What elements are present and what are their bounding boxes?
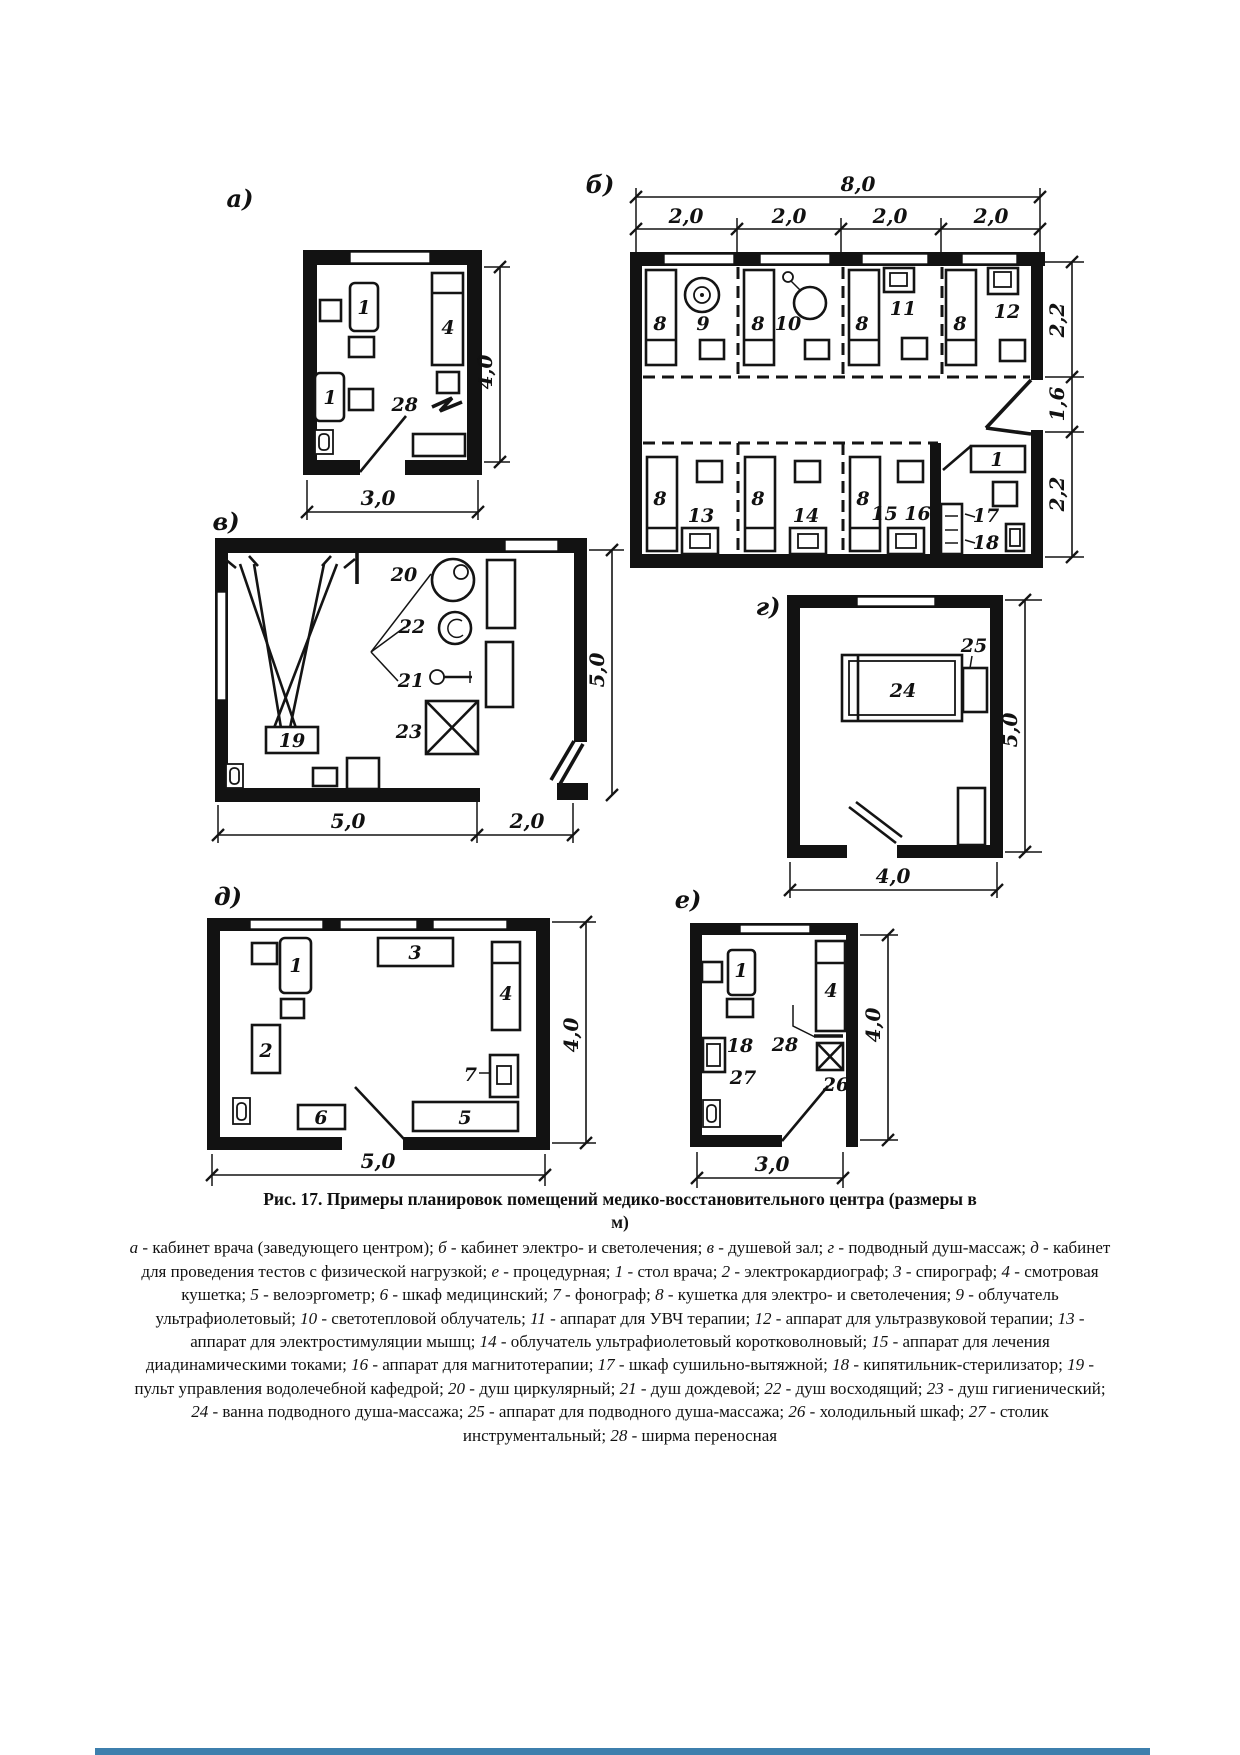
- plan-g: г) 24 25 5,0: [756, 592, 1042, 898]
- dim-right-mid: 1,6: [1045, 387, 1069, 422]
- item-exam-couch: 4: [499, 983, 512, 1005]
- figure-caption: Рис. 17. Примеры планировок помещений ме…: [128, 1188, 1113, 1447]
- door-leaf: [360, 416, 406, 472]
- legend-key: 14: [480, 1332, 497, 1351]
- legend-key: 9: [955, 1285, 964, 1304]
- legend-key: в: [707, 1238, 714, 1257]
- item-ecg: 2: [258, 1040, 272, 1062]
- item-bath: 24: [889, 680, 916, 702]
- window: [760, 254, 830, 264]
- plan-a: а) 1 1 4 28: [227, 184, 510, 520]
- item-couch: 8: [652, 313, 666, 335]
- window: [340, 920, 417, 929]
- item-myostim: 13: [688, 505, 714, 527]
- dim-height: 5,0: [585, 653, 609, 688]
- legend-key: 18: [832, 1355, 849, 1374]
- item-heat-irradiator: 10: [775, 313, 801, 335]
- legend-key: 12: [755, 1309, 772, 1328]
- item-sterilizer: 18: [973, 532, 999, 554]
- window: [433, 920, 507, 929]
- plan-b-label: б): [586, 170, 615, 199]
- item-doctor-desk: 1: [323, 387, 336, 409]
- legend-key: 25: [468, 1402, 485, 1421]
- plan-g-label: г): [756, 592, 781, 621]
- dim-width: 5,0: [361, 1149, 396, 1173]
- item-exam-couch: 4: [441, 317, 454, 339]
- dim-width: 4,0: [876, 864, 911, 888]
- legend-key: 23: [927, 1379, 944, 1398]
- plan-v: в) 19: [212, 507, 624, 843]
- dim-height: 4,0: [473, 355, 497, 390]
- plan-v-label: в): [212, 507, 239, 536]
- legend-key: 13: [1058, 1309, 1075, 1328]
- legend-key: б: [438, 1238, 447, 1257]
- window: [505, 540, 558, 551]
- dim-height: 5,0: [998, 713, 1022, 748]
- window: [250, 920, 323, 929]
- item-couch: 8: [750, 488, 764, 510]
- legend-key: г: [828, 1238, 835, 1257]
- plan-a-label: а): [227, 184, 254, 213]
- item-couch: 8: [750, 313, 764, 335]
- item-drying-cabinet: 17: [973, 505, 999, 527]
- legend-key: 8: [655, 1285, 664, 1304]
- dim-right-bottom: 2,2: [1045, 477, 1069, 513]
- window: [350, 252, 430, 263]
- door-leaf: [856, 802, 902, 837]
- entry-splay: [551, 741, 574, 780]
- furniture: [315, 273, 465, 456]
- door-leaf: [782, 1086, 828, 1141]
- legend-key: 16: [351, 1355, 368, 1374]
- item-diadynamic-magnet: 15 16: [871, 503, 931, 525]
- item-couch: 8: [855, 488, 869, 510]
- item-doctor-desk: 1: [289, 955, 302, 977]
- window: [962, 254, 1017, 264]
- bottom-accent-bar: [95, 1748, 1150, 1755]
- legend-key: 28: [610, 1426, 627, 1445]
- document-page: а) 1 1 4 28: [0, 0, 1240, 1755]
- window: [857, 597, 935, 606]
- item-fridge: 26: [822, 1074, 849, 1096]
- item-couch: 8: [854, 313, 868, 335]
- item-rain-shower: 21: [397, 670, 424, 692]
- dim-width-main: 5,0: [331, 809, 366, 833]
- entry-splay: [986, 428, 1031, 434]
- item-doctor-desk: 1: [357, 297, 370, 319]
- legend-key: 3: [893, 1262, 902, 1281]
- legend-key: 17: [598, 1355, 615, 1374]
- item-massage-apparatus: 25: [960, 635, 987, 657]
- legend-key: д: [1030, 1238, 1039, 1257]
- dim-width: 3,0: [361, 486, 396, 510]
- door-leaf: [849, 807, 896, 843]
- item-uv-short: 14: [793, 505, 819, 527]
- item-circular-shower: 20: [390, 564, 417, 586]
- dim-height: 4,0: [861, 1008, 885, 1043]
- item-console: 19: [279, 730, 305, 752]
- item-screen: 28: [391, 394, 418, 416]
- item-bike: 5: [458, 1107, 471, 1129]
- figure-17-drawing: а) 1 1 4 28: [0, 0, 1240, 1190]
- door-leaf: [943, 446, 971, 470]
- legend-key: 20: [448, 1379, 465, 1398]
- legend-key: 7: [552, 1285, 561, 1304]
- legend-key: 10: [300, 1309, 317, 1328]
- furniture: [233, 938, 520, 1131]
- shower-fixtures: [226, 559, 515, 789]
- window: [740, 925, 810, 933]
- figure-title-line2: м): [611, 1212, 629, 1232]
- dimensions-top: 8,0 2,0 2,0 2,0 2,0: [630, 172, 1046, 252]
- figure-legend: а - кабинет врача (заведующего центром);…: [128, 1236, 1113, 1447]
- entry-splay: [560, 744, 583, 784]
- door-leaf: [355, 1087, 404, 1139]
- dim-width: 3,0: [755, 1152, 790, 1176]
- item-spirograph: 3: [408, 942, 421, 964]
- hydro-console: [225, 556, 355, 753]
- figure-title-line1: Рис. 17. Примеры планировок помещений ме…: [263, 1189, 977, 1209]
- dimensions-right: 2,2 1,6 2,2: [1045, 256, 1084, 563]
- plan-e-label: е): [675, 885, 702, 914]
- legend-key: 4: [1002, 1262, 1011, 1281]
- item-phonograph: 7: [464, 1064, 477, 1086]
- dim-right-top: 2,2: [1045, 303, 1069, 339]
- dim-total: 8,0: [840, 172, 876, 196]
- legend-key: 22: [764, 1379, 781, 1398]
- legend-key: е: [491, 1262, 499, 1281]
- legend-key: а: [130, 1238, 139, 1257]
- legend-key: 5: [250, 1285, 259, 1304]
- window: [217, 592, 226, 700]
- item-exam-couch: 4: [824, 980, 837, 1002]
- plan-d-label: д): [214, 882, 242, 911]
- legend-key: 27: [969, 1402, 986, 1421]
- item-doctor-desk: 1: [734, 960, 747, 982]
- dim-width-annex: 2,0: [509, 809, 545, 833]
- item-uv-irradiator: 9: [696, 313, 709, 335]
- dim-bay: 2,0: [973, 204, 1009, 228]
- legend-key: 26: [788, 1402, 805, 1421]
- item-instrument-table: 27: [729, 1067, 756, 1089]
- dim-height: 4,0: [559, 1018, 583, 1053]
- item-uhf: 11: [890, 298, 916, 320]
- item-couch: 8: [652, 488, 666, 510]
- window: [862, 254, 928, 264]
- item-hygienic-shower: 23: [395, 721, 422, 743]
- item-table: 1: [990, 449, 1003, 471]
- item-ascending-shower: 22: [398, 616, 425, 638]
- item-couch: 8: [952, 313, 966, 335]
- dim-bay: 2,0: [771, 204, 807, 228]
- legend-key: 24: [191, 1402, 208, 1421]
- dim-bay: 2,0: [872, 204, 908, 228]
- legend-key: 2: [722, 1262, 731, 1281]
- legend-key: 15: [871, 1332, 888, 1351]
- dim-bay: 2,0: [668, 204, 704, 228]
- figure-title: Рис. 17. Примеры планировок помещений ме…: [128, 1188, 1113, 1234]
- plan-d: д) 1 2 3 4 7 5 6: [206, 882, 596, 1186]
- legend-key: 11: [530, 1309, 546, 1328]
- folding-screen-symbol: [432, 398, 462, 411]
- legend-key: 21: [620, 1379, 637, 1398]
- item-ultrasound: 12: [994, 301, 1020, 323]
- item-cabinet: 6: [314, 1107, 327, 1129]
- entry-splay: [986, 380, 1031, 428]
- legend-key: 19: [1067, 1355, 1084, 1374]
- legend-key: 1: [615, 1262, 624, 1281]
- item-sterilizer: 18: [727, 1035, 753, 1057]
- plan-e: е) 1 4 18 27 28 26 4: [675, 885, 898, 1188]
- window: [664, 254, 734, 264]
- item-screen: 28: [771, 1034, 798, 1056]
- legend-key: 6: [380, 1285, 389, 1304]
- plan-b: б) 8,0 2,0 2,0 2,0 2,0: [586, 170, 1084, 568]
